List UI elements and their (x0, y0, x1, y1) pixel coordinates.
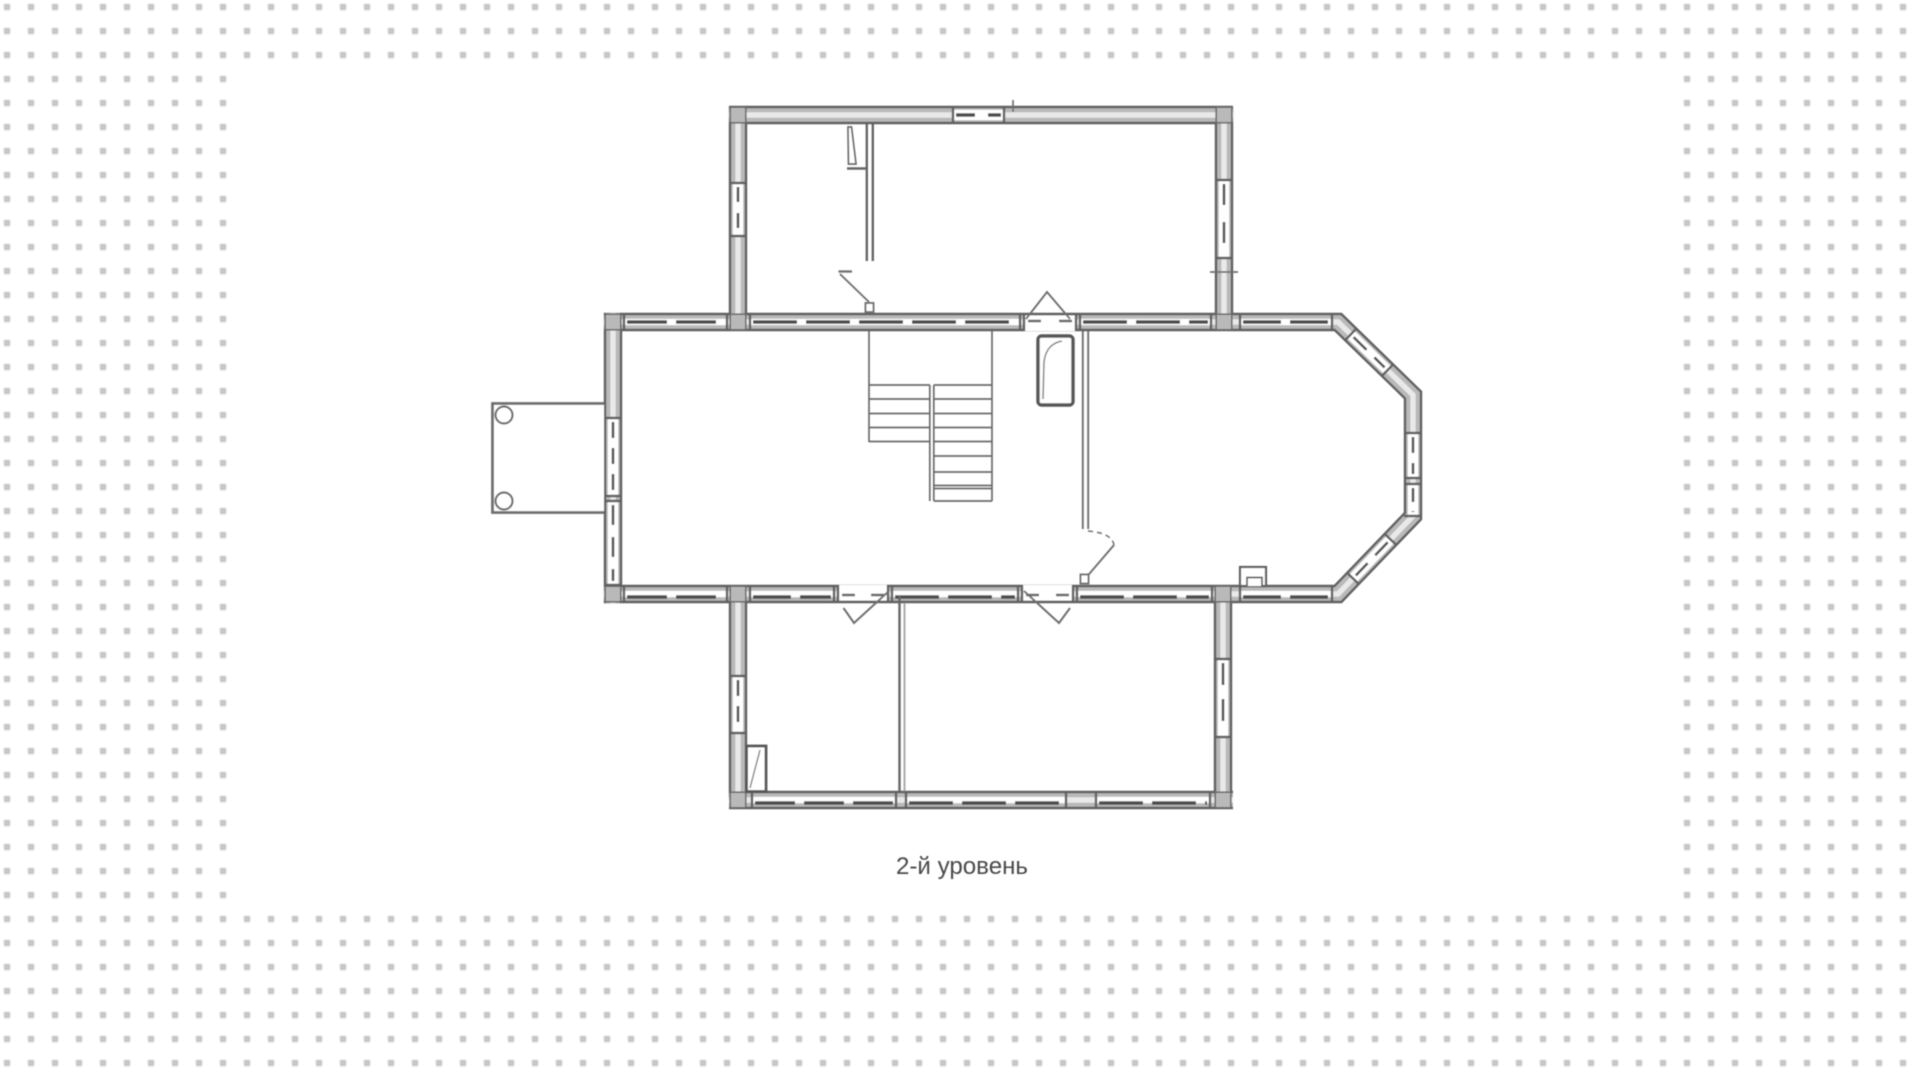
svg-text:2-й уровень: 2-й уровень (896, 853, 1028, 880)
